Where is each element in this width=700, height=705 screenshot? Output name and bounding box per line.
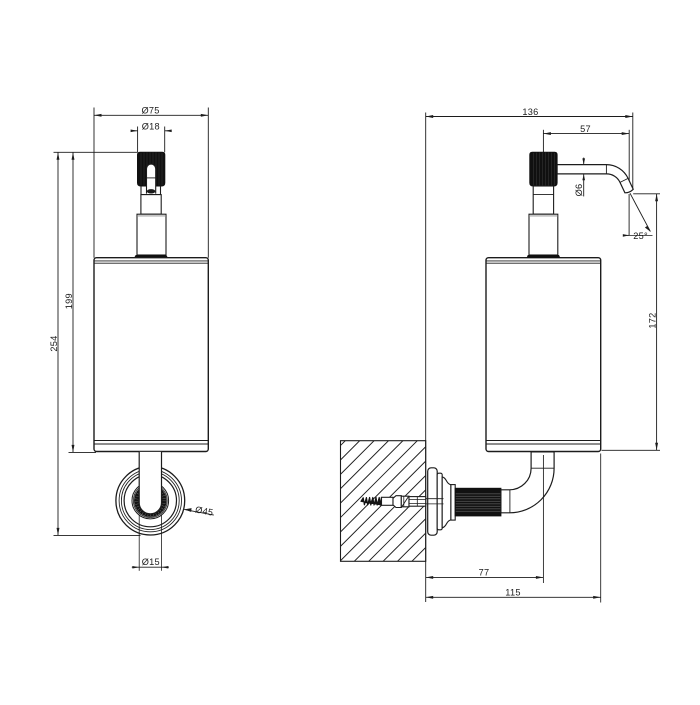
svg-text:199: 199 [64, 293, 74, 309]
svg-text:25°: 25° [633, 231, 648, 241]
svg-text:136: 136 [522, 107, 538, 117]
svg-text:115: 115 [505, 588, 520, 598]
svg-text:254: 254 [49, 336, 59, 352]
svg-text:Ø45: Ø45 [194, 505, 214, 518]
svg-text:Ø6: Ø6 [574, 184, 584, 197]
svg-text:172: 172 [647, 313, 657, 329]
svg-text:Ø18: Ø18 [142, 121, 160, 131]
svg-text:57: 57 [580, 124, 591, 134]
svg-text:77: 77 [479, 567, 490, 577]
svg-text:Ø15: Ø15 [142, 557, 160, 567]
svg-text:Ø75: Ø75 [142, 105, 160, 115]
